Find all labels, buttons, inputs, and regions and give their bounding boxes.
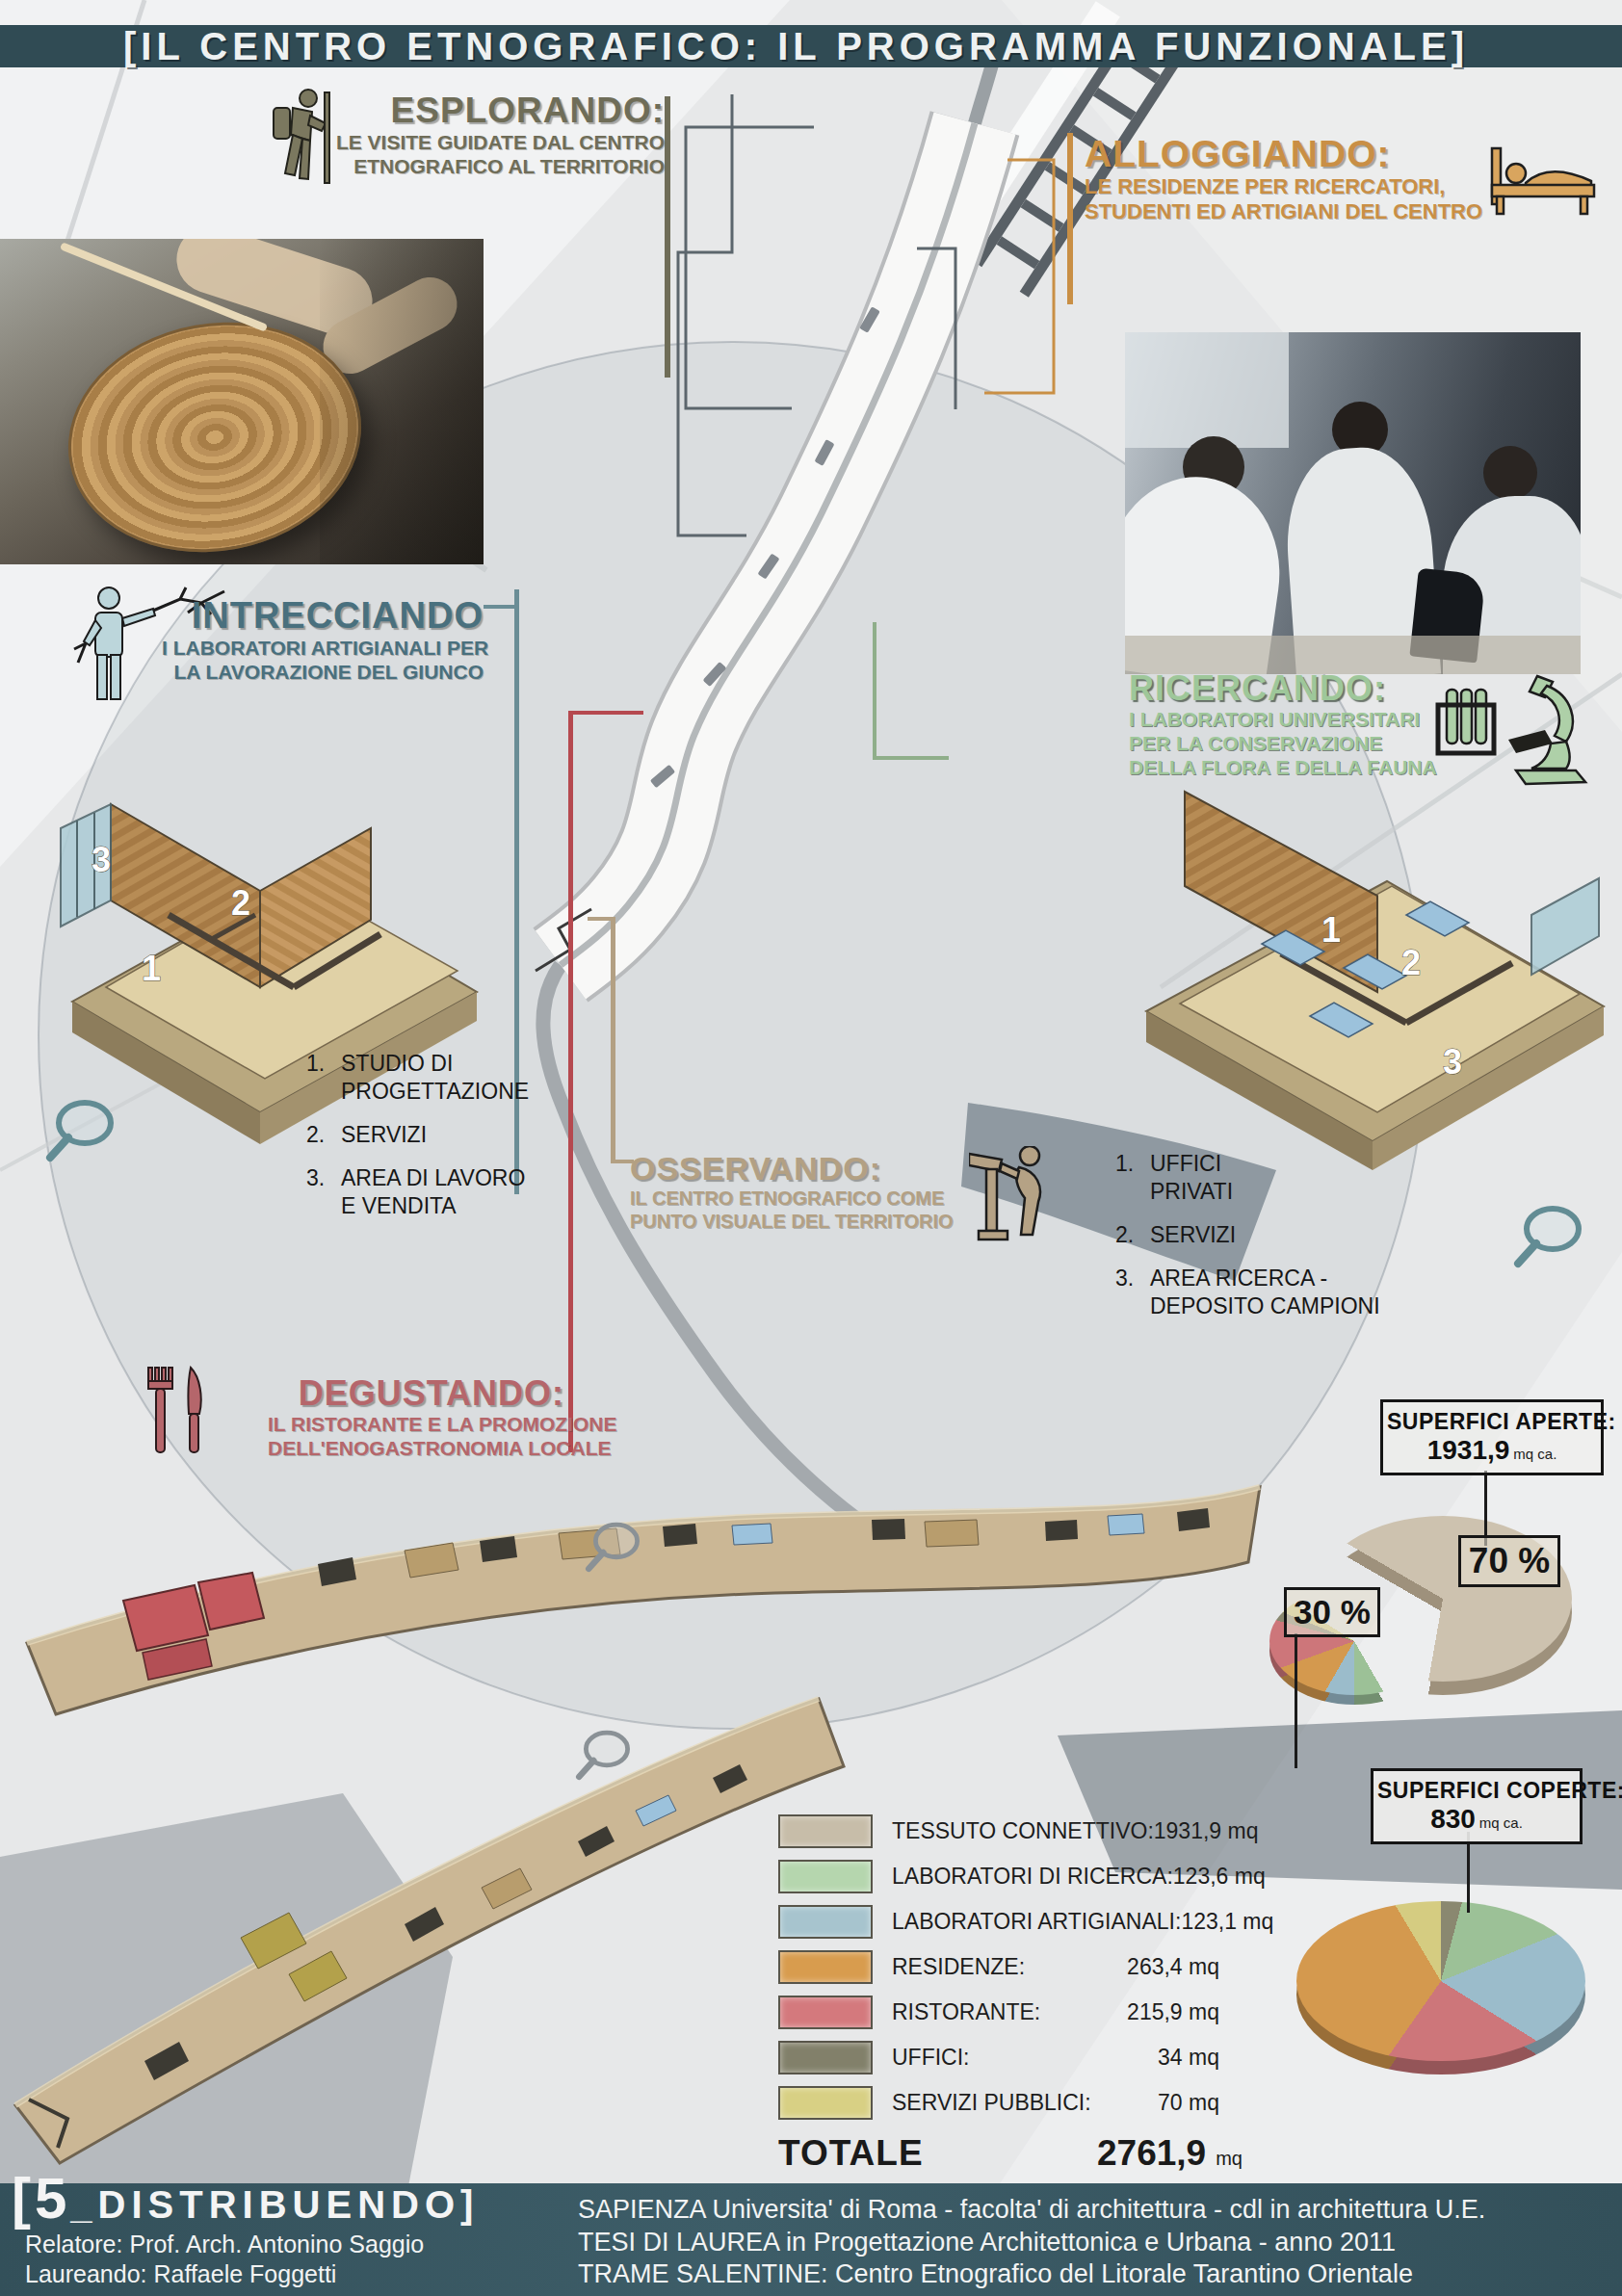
section-ricercando-heading: RICERCANDO: (1129, 670, 1456, 707)
superfici-coperte-value: 830 (1430, 1804, 1476, 1834)
legend-total-unit: mq (1216, 2148, 1243, 2170)
section-intrecciando-line: LA LAVORAZIONE DEL GIUNCO (162, 660, 484, 684)
section-intrecciando: INTRECCIANDO I LABORATORI ARTIGIANALI PE… (162, 597, 484, 684)
legend-total-label: TOTALE (778, 2133, 924, 2174)
list-item-label: UFFICI (1150, 1150, 1233, 1178)
photo-laboratory (1125, 332, 1581, 674)
axon-room-number: 2 (1401, 943, 1421, 982)
legend-total-value: 2761,9 (1097, 2133, 1216, 2174)
legend-swatch (778, 1950, 873, 1984)
list-item: 2. SERVIZI (1115, 1221, 1452, 1249)
legend-value: 34 mq (1158, 2045, 1243, 2071)
section-intrecciando-line: I LABORATORI ARTIGIANALI PER (162, 636, 484, 660)
hiker-icon (270, 87, 337, 191)
list-item-label: AREA RICERCA - (1150, 1265, 1380, 1292)
legend-swatch (778, 2041, 873, 2074)
superfici-coperte-title: SUPERFICI COPERTE: (1377, 1778, 1576, 1804)
axon-room-number: 1 (1321, 910, 1341, 950)
list-item: 2. SERVIZI (306, 1121, 624, 1149)
superfici-aperte-value: 1931,9 (1427, 1435, 1510, 1465)
legend-swatch (778, 1996, 873, 2029)
legend-row: LABORATORI ARTIGIANALI: 123,1 mq (778, 1899, 1243, 1944)
photo-shape (1125, 332, 1289, 448)
legend-value: 263,4 mq (1127, 1954, 1243, 1980)
microscope-icon (1495, 672, 1591, 794)
axon-room-number: 1 (142, 949, 161, 988)
section-esplorando: ESPLORANDO: LE VISITE GUIDATE DAL CENTRO… (335, 92, 665, 178)
list-item: 1. STUDIO DIPROGETTAZIONE (306, 1050, 624, 1106)
pie-top (1296, 1901, 1585, 2061)
legend-value: 123,6 mq (1173, 1864, 1289, 1890)
axon-room-number: 3 (1443, 1042, 1462, 1082)
superfici-coperte-unit: mq ca. (1479, 1814, 1523, 1831)
legend-label: RESIDENZE: (892, 1954, 1025, 1980)
footer-relatore: Relatore: Prof. Arch. Antonino Saggio (25, 2231, 424, 2258)
list-item-label: E VENDITA (341, 1192, 525, 1220)
legend-label: TESSUTO CONNETTIVO: (892, 1818, 1154, 1844)
legend-value: 1931,9 mq (1154, 1818, 1282, 1844)
section-osservando-line: PUNTO VISUALE DEL TERRITORIO (630, 1210, 986, 1233)
section-esplorando-heading: ESPLORANDO: (335, 92, 665, 130)
section-degustando-line: DELL'ENOGASTRONOMIA LOCALE (268, 1436, 564, 1460)
legend-swatch (778, 1860, 873, 1893)
footer-thesis-line: TESI DI LAUREA in Progettazione Architet… (578, 2228, 1396, 2257)
superfici-aperte-box: SUPERFICI APERTE: 1931,9mq ca. (1380, 1399, 1604, 1475)
legend-row: RESIDENZE: 263,4 mq (778, 1944, 1243, 1990)
legend-row: TESSUTO CONNETTIVO: 1931,9 mq (778, 1809, 1243, 1854)
section-osservando-line: IL CENTRO ETNOGRAFICO COME (630, 1187, 986, 1210)
legend: TESSUTO CONNETTIVO: 1931,9 mq LABORATORI… (778, 1809, 1243, 2174)
section-degustando-heading: DEGUSTANDO: (268, 1375, 564, 1412)
poster: 3 2 1 1 2 3 (0, 0, 1622, 2296)
list-item: 3. AREA RICERCA -DEPOSITO CAMPIONI (1115, 1265, 1452, 1320)
legend-value: 215,9 mq (1127, 1999, 1243, 2025)
pie-label-30: 30 % (1284, 1587, 1380, 1637)
list-item: 1. UFFICIPRIVATI (1115, 1150, 1452, 1206)
superfici-aperte-title: SUPERFICI APERTE: (1387, 1409, 1597, 1435)
photo-shape (320, 239, 484, 564)
footer-project-line: TRAME SALENTINE: Centro Etnografico del … (578, 2259, 1413, 2289)
series-number: [5 (12, 2166, 70, 2231)
list-item-label: STUDIO DI (341, 1050, 529, 1078)
section-alloggiando: ALLOGGIANDO: LE RESIDENZE PER RICERCATOR… (1085, 135, 1508, 225)
section-intrecciando-heading: INTRECCIANDO (162, 597, 484, 636)
observer-icon (969, 1146, 1051, 1251)
title-band: [IL CENTRO ETNOGRAFICO: IL PROGRAMMA FUN… (0, 25, 1622, 67)
section-ricercando-line: PER LA CONSERVAZIONE (1129, 731, 1456, 755)
legend-label: UFFICI: (892, 2045, 970, 2071)
axon-room-number: 3 (92, 840, 111, 879)
legend-swatch (778, 2086, 873, 2120)
section-esplorando-line: LE VISITE GUIDATE DAL CENTRO (335, 130, 665, 154)
test-tubes-icon (1435, 684, 1497, 763)
bed-icon (1489, 143, 1597, 223)
section-ricercando: RICERCANDO: I LABORATORI UNIVERSITARI PE… (1129, 670, 1456, 779)
legend-swatch (778, 1814, 873, 1848)
list-item-number: 3. (1115, 1265, 1150, 1320)
section-alloggiando-heading: ALLOGGIANDO: (1085, 135, 1508, 174)
axon-room-number: 2 (231, 883, 250, 923)
pie-chart-covered-breakdown (1289, 1890, 1597, 2092)
list-item-label: AREA DI LAVORO (341, 1164, 525, 1192)
photo-shape (1483, 446, 1537, 500)
pie-label-70: 70 % (1458, 1535, 1560, 1587)
room-list-ricercando: 1. UFFICIPRIVATI 2. SERVIZI 3. AREA RICE… (1115, 1150, 1452, 1336)
list-item-number: 3. (306, 1164, 341, 1220)
legend-label: LABORATORI ARTIGIANALI: (892, 1909, 1181, 1935)
photo-weaving (0, 239, 484, 564)
legend-swatch (778, 1905, 873, 1939)
list-item-label: SERVIZI (341, 1121, 427, 1149)
legend-label: LABORATORI DI RICERCA: (892, 1864, 1173, 1890)
list-item-number: 1. (306, 1050, 341, 1106)
list-item-label: PROGETTAZIONE (341, 1078, 529, 1106)
legend-total-row: TOTALE 2761,9 mq (778, 2133, 1243, 2174)
section-osservando-heading: OSSERVANDO: (630, 1152, 986, 1187)
list-item-number: 2. (1115, 1221, 1150, 1249)
page-title: [IL CENTRO ETNOGRAFICO: IL PROGRAMMA FUN… (0, 25, 1469, 68)
room-list-intrecciando: 1. STUDIO DIPROGETTAZIONE 2. SERVIZI 3. … (306, 1050, 624, 1236)
list-item-label: PRIVATI (1150, 1178, 1233, 1206)
fork-knife-icon (144, 1366, 217, 1461)
legend-row: SERVIZI PUBBLICI: 70 mq (778, 2080, 1243, 2126)
list-item-number: 1. (1115, 1150, 1150, 1206)
list-item-label: SERVIZI (1150, 1221, 1236, 1249)
legend-row: RISTORANTE: 215,9 mq (778, 1990, 1243, 2035)
series-name: _DISTRIBUENDO] (70, 2183, 479, 2226)
footer-university-line: SAPIENZA Universita' di Roma - facolta' … (578, 2195, 1485, 2225)
leader-line (1295, 1633, 1297, 1768)
section-esplorando-line: ETNOGRAFICO AL TERRITORIO (335, 154, 665, 178)
legend-label: SERVIZI PUBBLICI: (892, 2090, 1091, 2116)
section-ricercando-line: I LABORATORI UNIVERSITARI (1129, 707, 1456, 731)
section-degustando-line: IL RISTORANTE E LA PROMOZIONE (268, 1412, 564, 1436)
legend-value: 70 mq (1158, 2090, 1243, 2116)
legend-label: RISTORANTE: (892, 1999, 1040, 2025)
footer-laureando: Laureando: Raffaele Foggetti (25, 2260, 336, 2288)
list-item-label: DEPOSITO CAMPIONI (1150, 1292, 1380, 1320)
section-osservando: OSSERVANDO: IL CENTRO ETNOGRAFICO COME P… (630, 1152, 986, 1233)
list-item: 3. AREA DI LAVOROE VENDITA (306, 1164, 624, 1220)
superfici-coperte-box: SUPERFICI COPERTE: 830mq ca. (1371, 1768, 1583, 1844)
section-alloggiando-line: STUDENTI ED ARTIGIANI DEL CENTRO (1085, 199, 1508, 224)
legend-value: 123,1 mq (1181, 1909, 1296, 1935)
legend-row: LABORATORI DI RICERCA: 123,6 mq (778, 1854, 1243, 1899)
list-item-number: 2. (306, 1121, 341, 1149)
series-title: [5_DISTRIBUENDO] (12, 2165, 479, 2231)
superfici-aperte-unit: mq ca. (1513, 1446, 1557, 1462)
section-degustando: DEGUSTANDO: IL RISTORANTE E LA PROMOZION… (268, 1375, 564, 1460)
section-ricercando-line: DELLA FLORA E DELLA FAUNA (1129, 755, 1456, 779)
legend-row: UFFICI: 34 mq (778, 2035, 1243, 2080)
section-alloggiando-line: LE RESIDENZE PER RICERCATORI, (1085, 174, 1508, 199)
